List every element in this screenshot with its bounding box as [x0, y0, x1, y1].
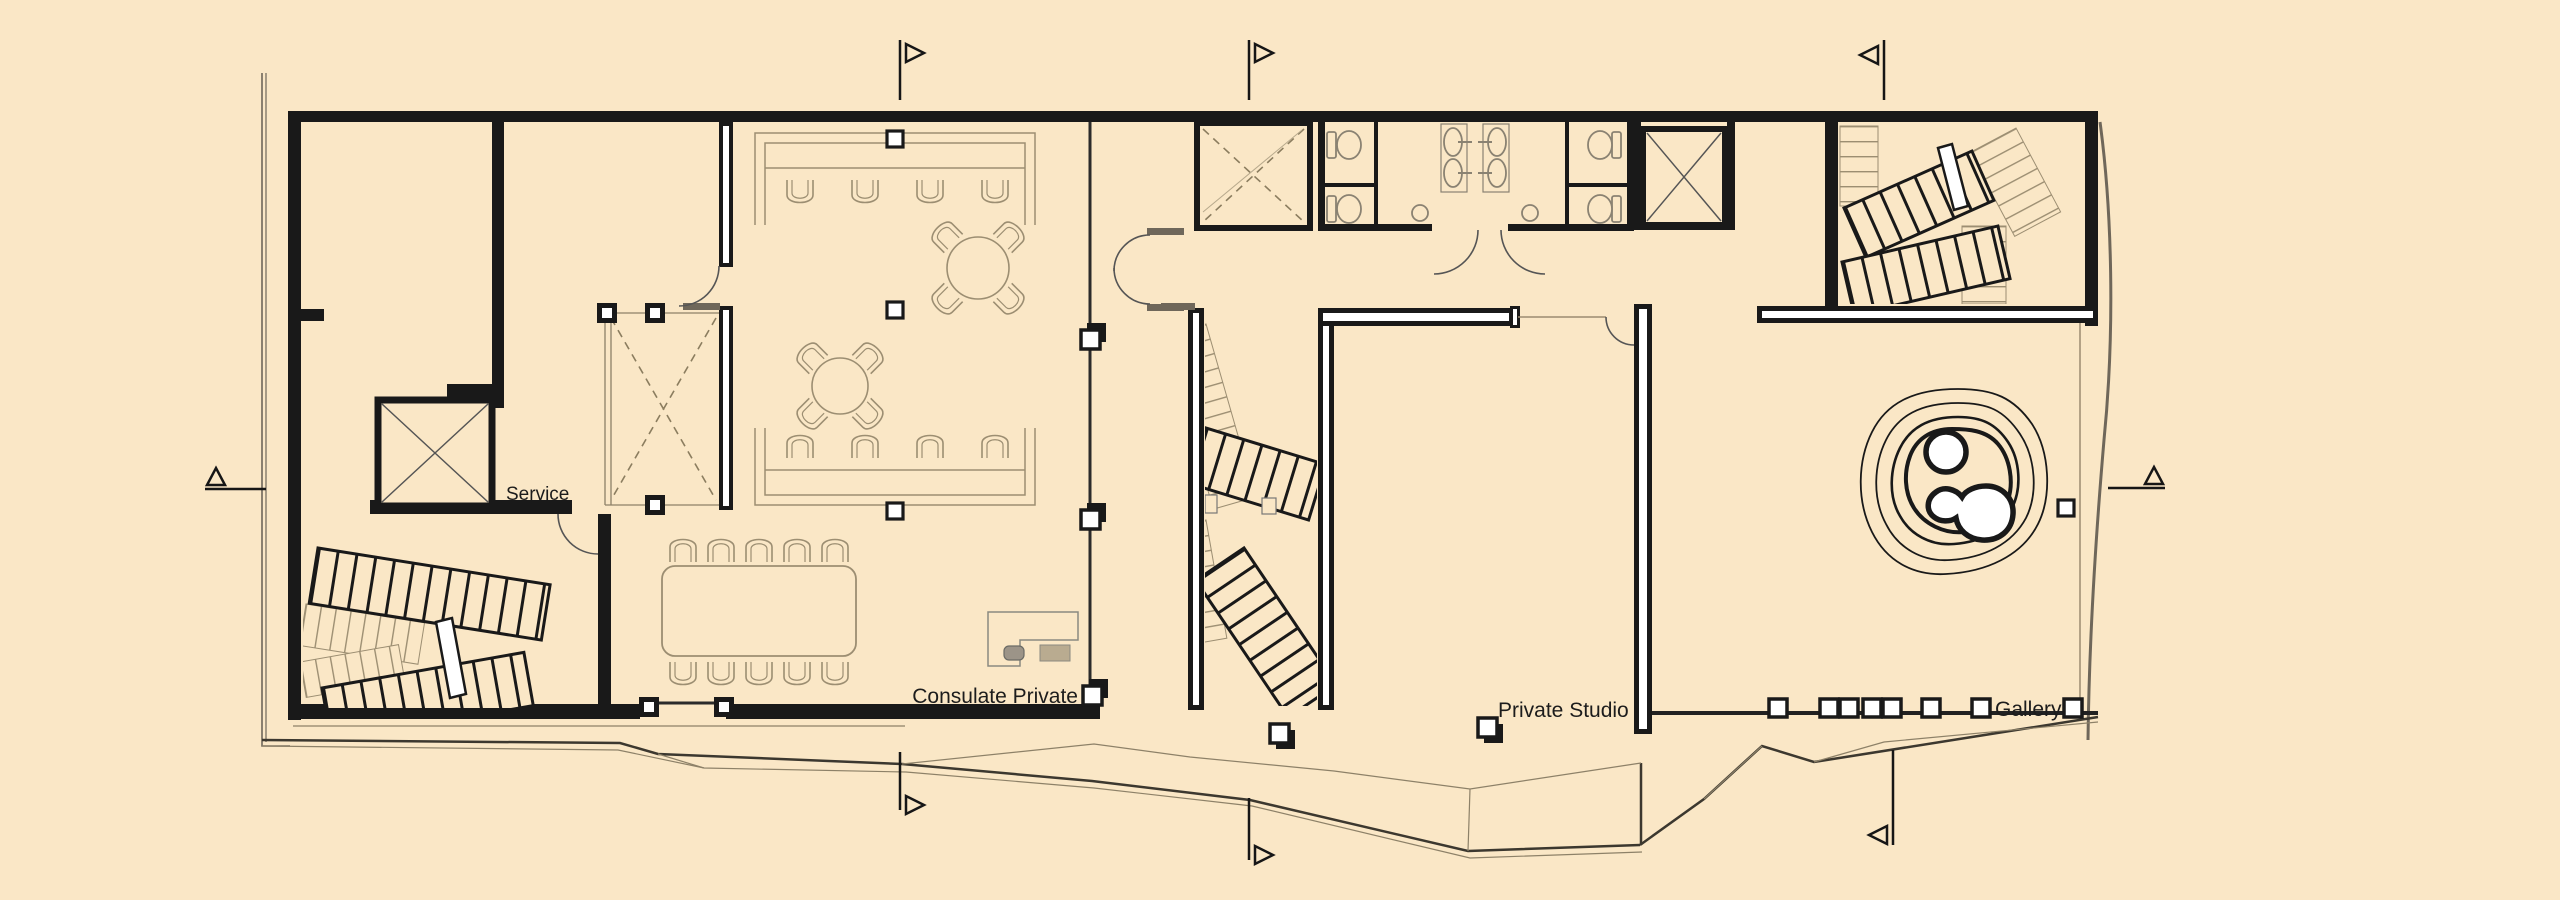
sink-counter-icon	[1441, 124, 1472, 192]
room-label-consulate-private: Consulate Private	[912, 685, 1078, 708]
toilet-icon	[1588, 131, 1621, 159]
staircase-icon	[1840, 126, 2061, 315]
round-table-icon	[928, 218, 1027, 317]
skylight-dashed-icon	[1197, 123, 1310, 228]
toilet-icon	[1327, 131, 1361, 159]
conference-table-icon	[662, 540, 856, 685]
floor-plan-canvas: Service Consulate Private Private Studio…	[0, 0, 2560, 900]
elevator-shaft-icon	[378, 400, 492, 506]
terrain-edges	[262, 717, 2098, 858]
contour-pool-icon	[1861, 389, 2047, 574]
room-label-private-studio: Private Studio	[1498, 699, 1629, 722]
room-label-service: Service	[506, 484, 569, 505]
restroom-fixtures	[1327, 124, 1621, 223]
elevator-shaft-icon	[1643, 129, 1725, 225]
toilet-icon	[1327, 195, 1361, 223]
floor-plan-page: Service Consulate Private Private Studio…	[0, 0, 2560, 900]
counter-chairs	[787, 436, 1008, 459]
round-table-icon	[793, 339, 886, 432]
room-label-gallery: Gallery	[1995, 698, 2062, 721]
toilet-icon	[1588, 195, 1621, 223]
reception-desk-icon	[988, 612, 1078, 666]
sink-counter-icon	[1478, 124, 1509, 192]
counter-chairs	[787, 180, 1008, 203]
